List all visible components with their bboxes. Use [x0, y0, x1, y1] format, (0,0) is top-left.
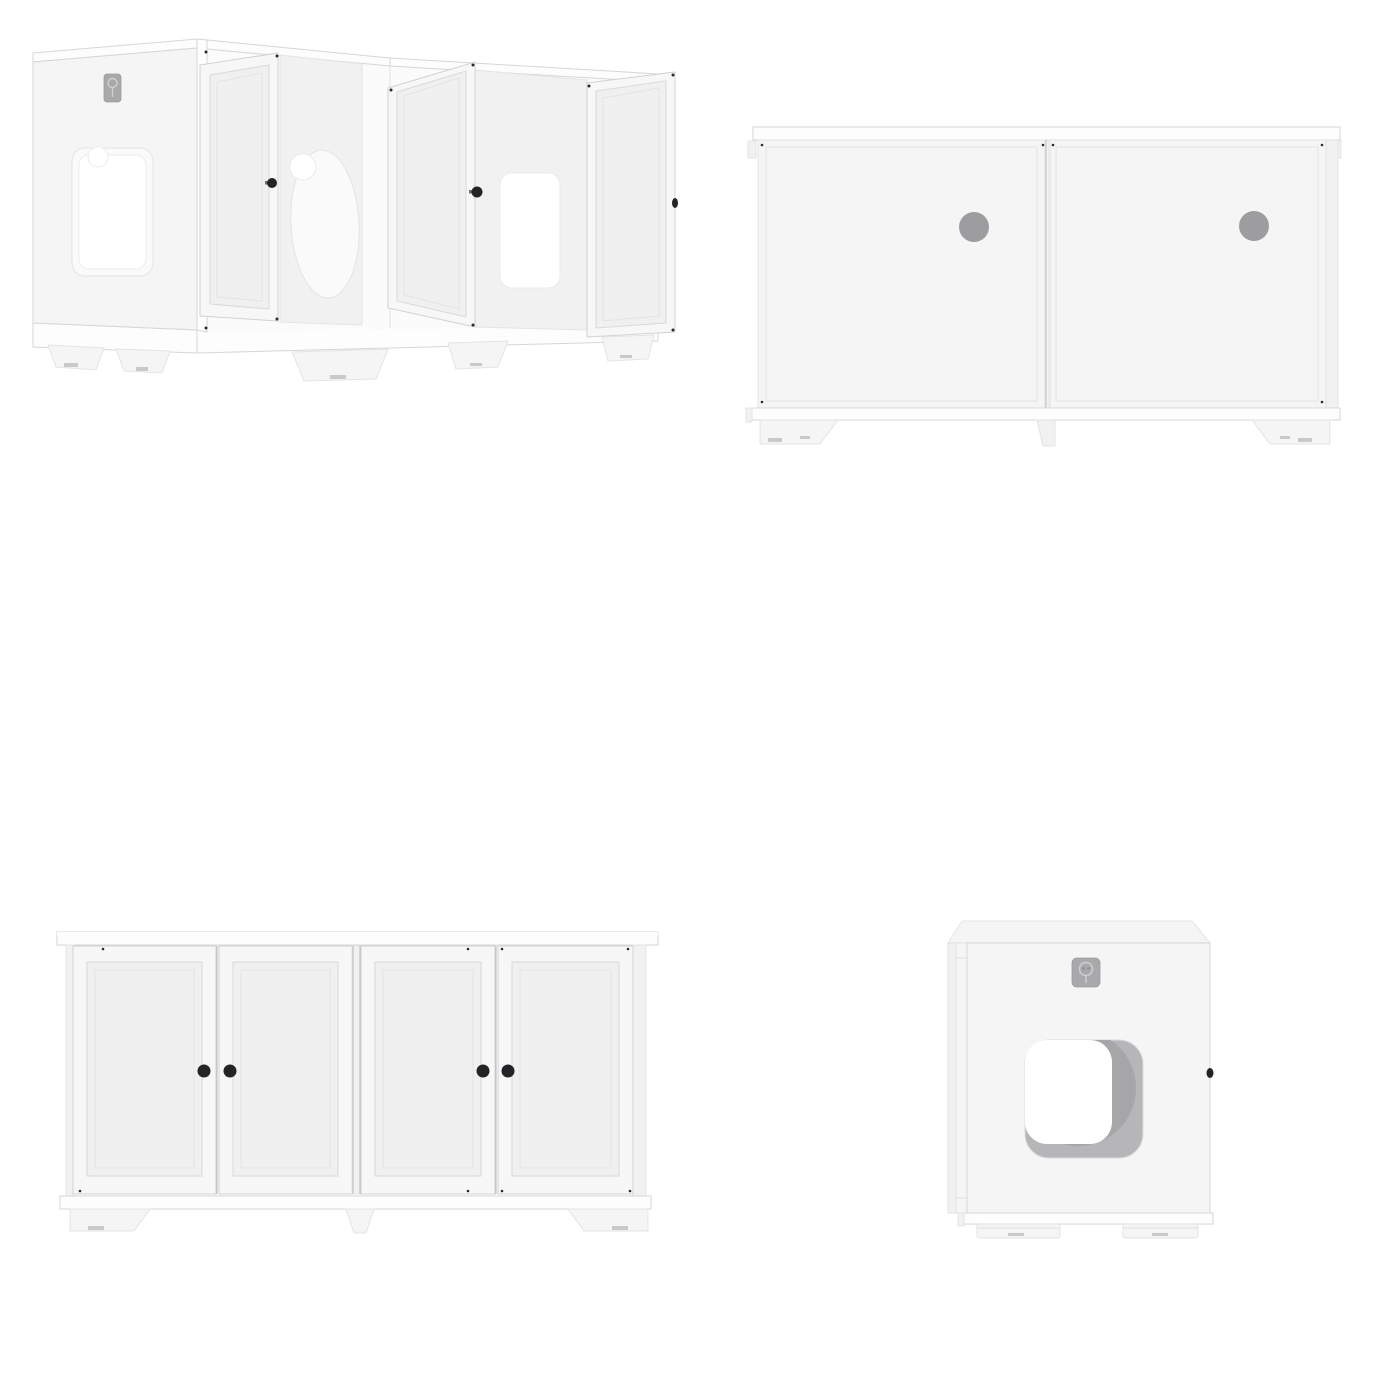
- back-edge-strip: [948, 943, 956, 1213]
- door-knob: [502, 1065, 515, 1078]
- base-and-feet: [33, 323, 658, 381]
- view-open-perspective-svg: [0, 0, 700, 420]
- brand-badge-icon: [104, 74, 121, 102]
- plinth-and-feet: [746, 408, 1340, 446]
- right-side-edge: [633, 945, 646, 1196]
- unit2-back-wall: [475, 70, 587, 330]
- view-back: [720, 100, 1370, 480]
- window-notch-hole: [88, 147, 108, 167]
- plinth: [962, 1213, 1213, 1224]
- open-door-2: [388, 62, 483, 327]
- product-grid: [0, 0, 1400, 1400]
- right-end-cap: [1326, 140, 1338, 408]
- oval-notch-hole: [290, 154, 316, 180]
- door-knob: [472, 187, 483, 198]
- vent-hole: [1239, 211, 1269, 241]
- view-front-svg: [30, 900, 680, 1260]
- top-board: [753, 127, 1340, 140]
- door-4: [498, 946, 633, 1194]
- open-door-1: [200, 53, 278, 321]
- open-door-3: [587, 72, 678, 337]
- top-face: [948, 921, 1210, 943]
- view-front-closed: [30, 900, 680, 1260]
- door-knob: [267, 178, 277, 188]
- view-open-perspective: [0, 0, 700, 420]
- door-3: [361, 946, 495, 1194]
- left-side-panel: [33, 39, 207, 332]
- plinth-and-feet: [958, 1213, 1213, 1238]
- door-knob-edge: [672, 198, 678, 208]
- view-side-entry: [920, 890, 1260, 1270]
- back-panel-right: [1048, 140, 1326, 408]
- door-knob: [477, 1065, 490, 1078]
- plinth: [60, 1196, 651, 1209]
- back-panel-left: [758, 140, 1045, 408]
- door-knob: [224, 1065, 237, 1078]
- door-knob-edge: [1207, 1068, 1214, 1078]
- cat-entry-cutout: [1020, 1030, 1143, 1158]
- view-back-svg: [720, 100, 1370, 480]
- door-knob: [198, 1065, 211, 1078]
- brand-badge-icon: [1072, 958, 1100, 987]
- interior-square-cutout: [500, 173, 560, 288]
- vent-hole: [959, 212, 989, 242]
- door-2: [219, 946, 352, 1194]
- interior-partition: [280, 55, 363, 325]
- view-side-svg: [920, 890, 1260, 1270]
- plinth: [750, 408, 1340, 420]
- plinth-and-feet: [60, 1196, 651, 1233]
- door-1: [73, 946, 216, 1194]
